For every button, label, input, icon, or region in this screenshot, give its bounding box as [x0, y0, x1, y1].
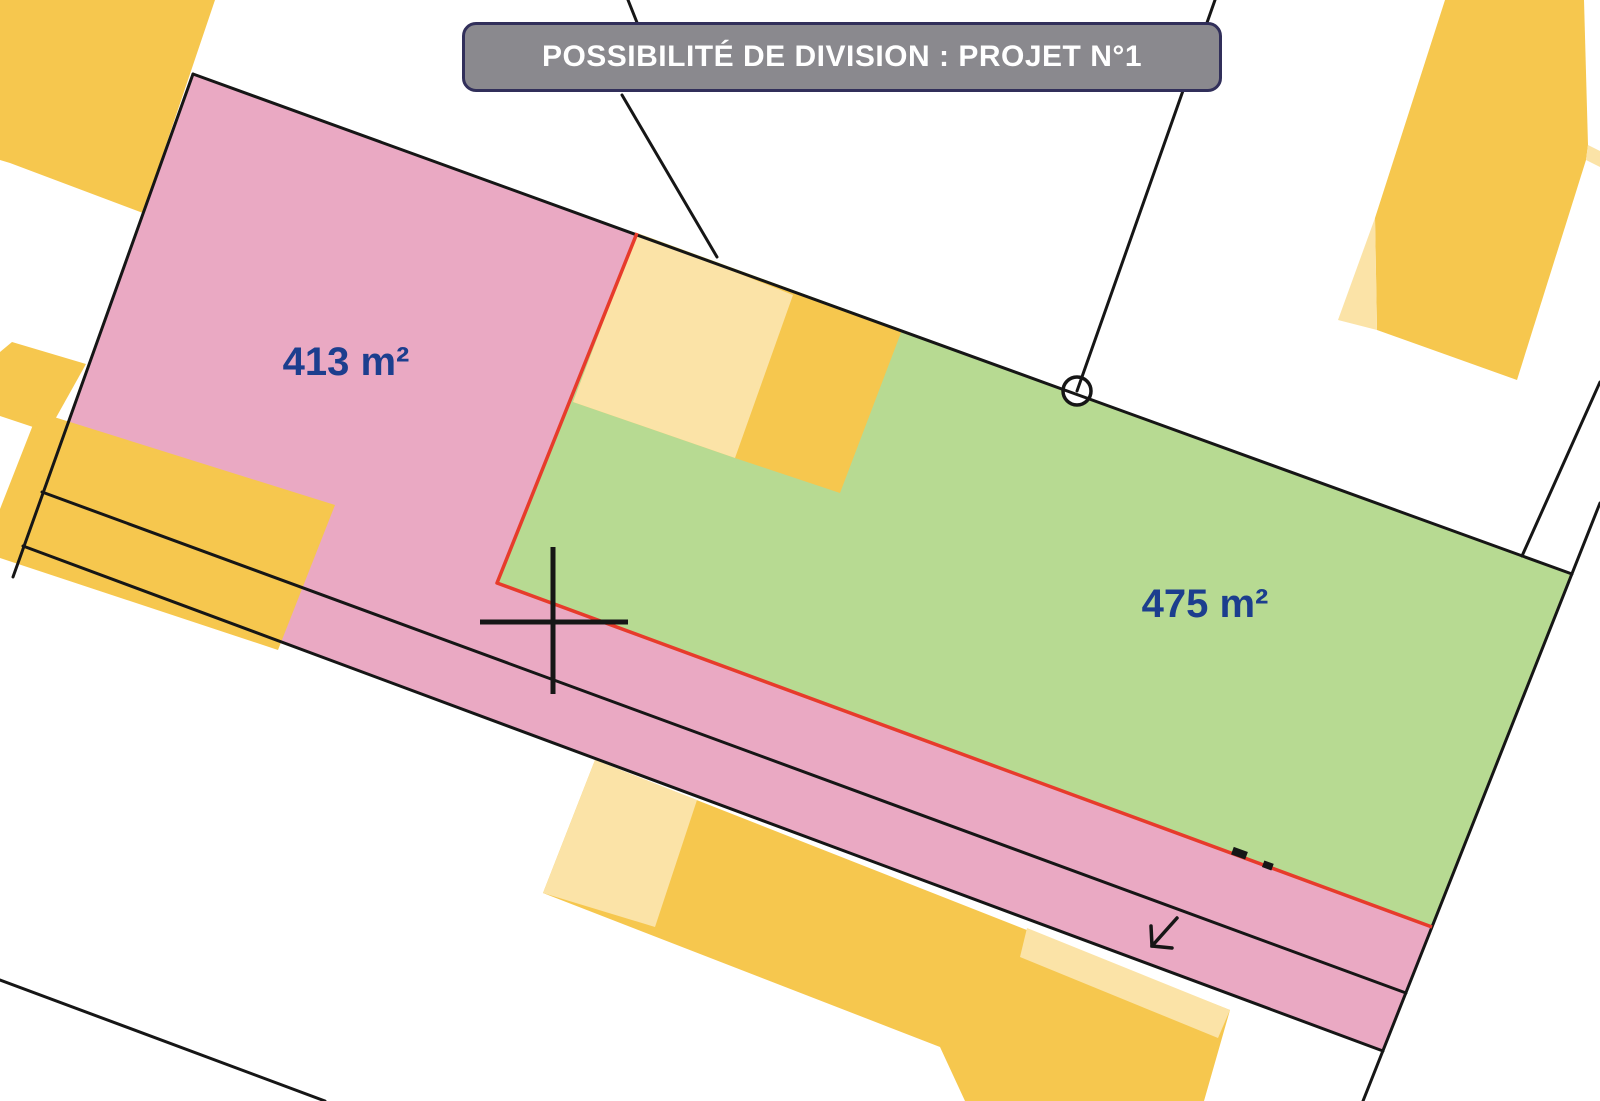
title-banner: POSSIBILITÉ DE DIVISION : PROJET N°1 [462, 22, 1222, 92]
road-line-bottom-left [0, 980, 325, 1101]
lot2-area-label: 475 m² [1120, 579, 1290, 629]
lot1-area-label: 413 m² [261, 337, 431, 387]
division-plan-canvas: 413 m² 475 m² POSSIBILITÉ DE DIVISION : … [0, 0, 1600, 1101]
building-top-right-annex [1338, 218, 1377, 330]
neighbor-line-top-lower-segment [622, 95, 717, 257]
building-top-right-notch [1586, 145, 1600, 167]
cadastral-map [0, 0, 1600, 1101]
title-banner-text: POSSIBILITÉ DE DIVISION : PROJET N°1 [542, 40, 1142, 74]
building-top-right [1375, 0, 1588, 380]
